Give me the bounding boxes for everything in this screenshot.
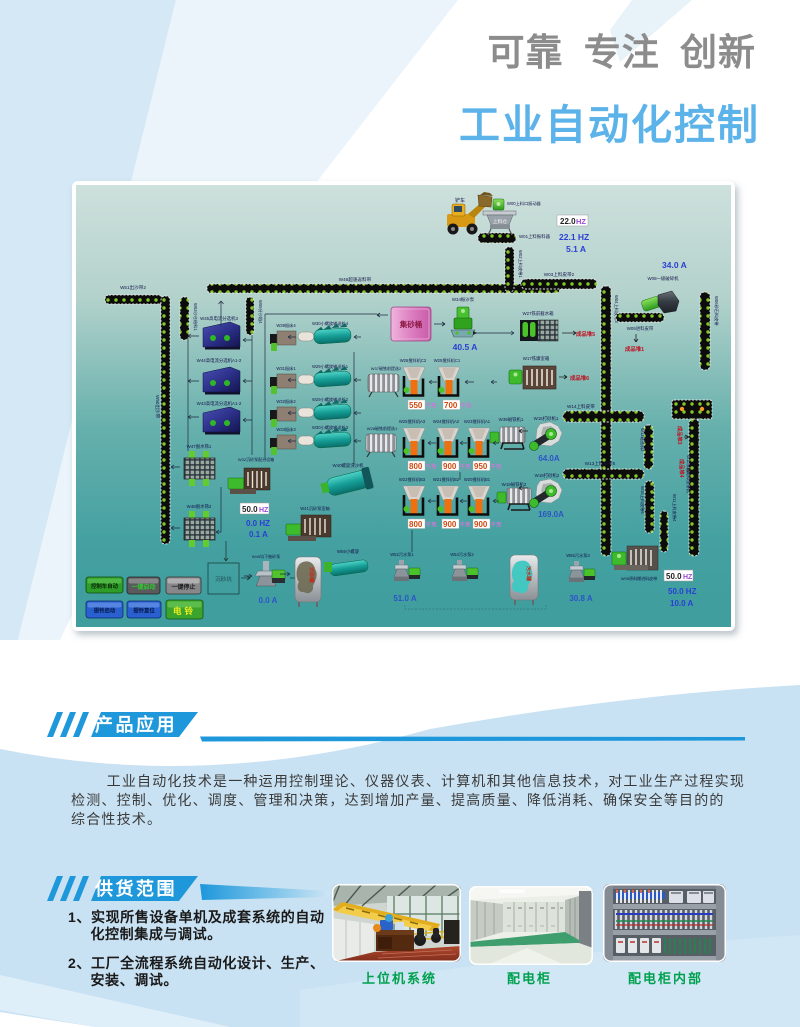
svg-text:千克: 千克: [461, 402, 473, 410]
svg-text:W03上料皮带2: W03上料皮带2: [544, 271, 575, 278]
svg-text:W02上料皮带1: W02上料皮带1: [517, 250, 524, 278]
svg-text:0.1 A: 0.1 A: [249, 530, 268, 539]
svg-text:上料仓: 上料仓: [493, 218, 508, 225]
svg-text:控制车自动: 控制车自动: [91, 582, 119, 590]
svg-text:电铃: 电铃: [173, 606, 196, 616]
svg-text:700: 700: [444, 401, 458, 410]
svg-text:千克: 千克: [460, 521, 472, 529]
svg-text:W13上料皮带5: W13上料皮带5: [585, 460, 616, 467]
svg-text:一键启动: 一键启动: [131, 583, 155, 591]
svg-text:950: 950: [474, 462, 488, 471]
svg-text:W08一级破碎机: W08一级破碎机: [648, 275, 680, 282]
svg-text:W55污水泵3: W55污水泵3: [566, 552, 590, 559]
svg-text:50.0 HZ: 50.0 HZ: [668, 587, 697, 596]
svg-text:千克: 千克: [491, 463, 503, 471]
svg-text:169.0A: 169.0A: [538, 510, 564, 519]
svg-text:900: 900: [443, 520, 457, 529]
svg-text:W27铁前截水箱: W27铁前截水箱: [523, 310, 555, 317]
svg-text:900: 900: [474, 520, 488, 529]
svg-text:千克: 千克: [491, 521, 503, 529]
svg-text:W37磁铁前提选2: W37磁铁前提选2: [371, 365, 402, 371]
svg-text:W41沉砂泵室箱: W41沉砂泵室箱: [300, 505, 330, 512]
svg-text:W19磁铁机2: W19磁铁机2: [502, 481, 527, 488]
svg-text:W24搅拌机A2: W24搅拌机A2: [433, 418, 460, 425]
svg-text:W18打砂机2: W18打砂机2: [535, 472, 560, 479]
svg-text:W33振床3: W33振床3: [276, 426, 296, 433]
svg-text:W21搅拌机B2: W21搅拌机B2: [433, 476, 460, 483]
svg-text:W47脱水筛1: W47脱水筛1: [187, 443, 212, 450]
svg-text:振铃启动: 振铃启动: [94, 607, 116, 615]
svg-text:HZ: HZ: [683, 574, 693, 581]
svg-text:W46超速返料带: W46超速返料带: [339, 276, 372, 283]
svg-text:50.0: 50.0: [666, 572, 682, 581]
svg-text:铲车: 铲车: [455, 197, 465, 204]
svg-text:W14上料皮带: W14上料皮带: [567, 403, 595, 410]
svg-text:10.0 A: 10.0 A: [670, 599, 693, 608]
svg-text:沉砂罐: 沉砂罐: [308, 567, 316, 583]
svg-text:W32沉砂泵配分设箱: W32沉砂泵配分设箱: [238, 456, 274, 462]
svg-text:千克: 千克: [426, 463, 438, 471]
svg-text:W11上料皮带4: W11上料皮带4: [671, 494, 678, 522]
svg-text:51.0 A: 51.0 A: [393, 594, 416, 603]
svg-text:5.1 A: 5.1 A: [566, 244, 586, 254]
svg-text:沉砂坑: 沉砂坑: [215, 575, 232, 583]
svg-text:W22搅拌机B3: W22搅拌机B3: [399, 476, 426, 483]
svg-text:W50出沙带: W50出沙带: [154, 395, 161, 419]
svg-text:40.5 A: 40.5 A: [453, 342, 478, 352]
svg-text:W48脱水筛2: W48脱水筛2: [187, 503, 212, 510]
svg-text:W06砂石料皮带: W06砂石料皮带: [713, 296, 720, 326]
svg-text:900: 900: [443, 462, 457, 471]
svg-text:0.0 HZ: 0.0 HZ: [246, 519, 270, 528]
svg-text:千克: 千克: [426, 521, 438, 529]
svg-text:W10原料破碎皮带机: W10原料破碎皮带机: [685, 455, 692, 494]
svg-text:千克: 千克: [460, 463, 472, 471]
svg-text:W44高电流分选机A1-2: W44高电流分选机A1-2: [197, 357, 242, 364]
svg-text:W16上料皮带6: W16上料皮带6: [639, 486, 646, 514]
svg-text:振铃复位: 振铃复位: [133, 607, 155, 615]
svg-text:W26搅拌机C2: W26搅拌机C2: [400, 357, 427, 364]
svg-text:W28磁铁前提选1: W28磁铁前提选1: [367, 425, 398, 431]
svg-text:W17铁康室箱: W17铁康室箱: [523, 355, 550, 362]
svg-text:成品堆3: 成品堆3: [676, 426, 684, 445]
svg-text:W32振床2: W32振床2: [276, 398, 296, 405]
svg-text:成品堆4: 成品堆4: [678, 459, 686, 478]
svg-text:成品堆6: 成品堆6: [570, 374, 589, 382]
svg-text:800: 800: [409, 520, 423, 529]
svg-text:W43高电流分选机A1-2: W43高电流分选机A1-2: [197, 400, 242, 407]
svg-text:W53沙仓给料1: W53沙仓给料1: [192, 303, 199, 331]
svg-text:W00上料口振动器: W00上料口振动器: [507, 200, 542, 207]
svg-text:千克: 千克: [426, 402, 438, 410]
svg-text:集砂桶: 集砂桶: [399, 319, 423, 329]
svg-text:W34振沙泵: W34振沙泵: [452, 296, 475, 303]
svg-text:50.0: 50.0: [242, 505, 258, 514]
svg-text:W54污水泵2: W54污水泵2: [450, 551, 474, 558]
svg-text:W25搅拌机A3: W25搅拌机A3: [399, 418, 426, 425]
svg-text:W49坑下抽砂泵: W49坑下抽砂泵: [252, 553, 280, 559]
svg-text:W39磁铁机1: W39磁铁机1: [499, 416, 524, 423]
svg-text:W31振床1: W31振床1: [276, 365, 296, 372]
svg-text:HZ: HZ: [576, 217, 586, 226]
svg-text:W09进料皮带: W09进料皮带: [627, 325, 654, 332]
svg-text:64.0A: 64.0A: [538, 454, 560, 463]
svg-text:34.0 A: 34.0 A: [662, 260, 687, 270]
svg-text:W52污水泵1: W52污水泵1: [390, 551, 414, 558]
svg-text:W23搅拌机A1: W23搅拌机A1: [464, 418, 491, 425]
svg-text:550: 550: [409, 401, 423, 410]
svg-text:22.1 HZ: 22.1 HZ: [559, 232, 589, 242]
svg-text:W45高电流分选机3: W45高电流分选机3: [200, 315, 238, 322]
svg-text:W01上料振料器: W01上料振料器: [519, 233, 551, 240]
svg-text:成品堆5: 成品堆5: [576, 330, 595, 338]
svg-text:W05原料棚进料皮带: W05原料棚进料皮带: [621, 575, 657, 581]
svg-text:800: 800: [409, 462, 423, 471]
svg-text:W51出沙带2: W51出沙带2: [120, 284, 146, 291]
svg-text:W55分沙链4: W55分沙链4: [257, 300, 264, 324]
svg-text:W12磁选机2: W12磁选机2: [639, 428, 646, 452]
svg-text:W15打砂机1: W15打砂机1: [534, 415, 559, 422]
svg-text:22.0: 22.0: [560, 217, 576, 226]
svg-text:W40螺旋洗沙机: W40螺旋洗沙机: [333, 462, 365, 469]
svg-text:W39振床4: W39振床4: [276, 322, 296, 329]
svg-text:成品堆1: 成品堆1: [625, 345, 644, 353]
svg-text:30.8 A: 30.8 A: [569, 594, 592, 603]
svg-text:W56小螺旋: W56小螺旋: [337, 548, 360, 555]
svg-text:0.0 A: 0.0 A: [259, 596, 278, 605]
svg-text:污水罐: 污水罐: [525, 566, 532, 581]
svg-text:W25搅拌机C1: W25搅拌机C1: [434, 357, 461, 364]
svg-text:一键停止: 一键停止: [171, 583, 195, 591]
svg-text:HZ: HZ: [259, 507, 269, 514]
svg-text:W20搅拌机B1: W20搅拌机B1: [464, 476, 491, 483]
